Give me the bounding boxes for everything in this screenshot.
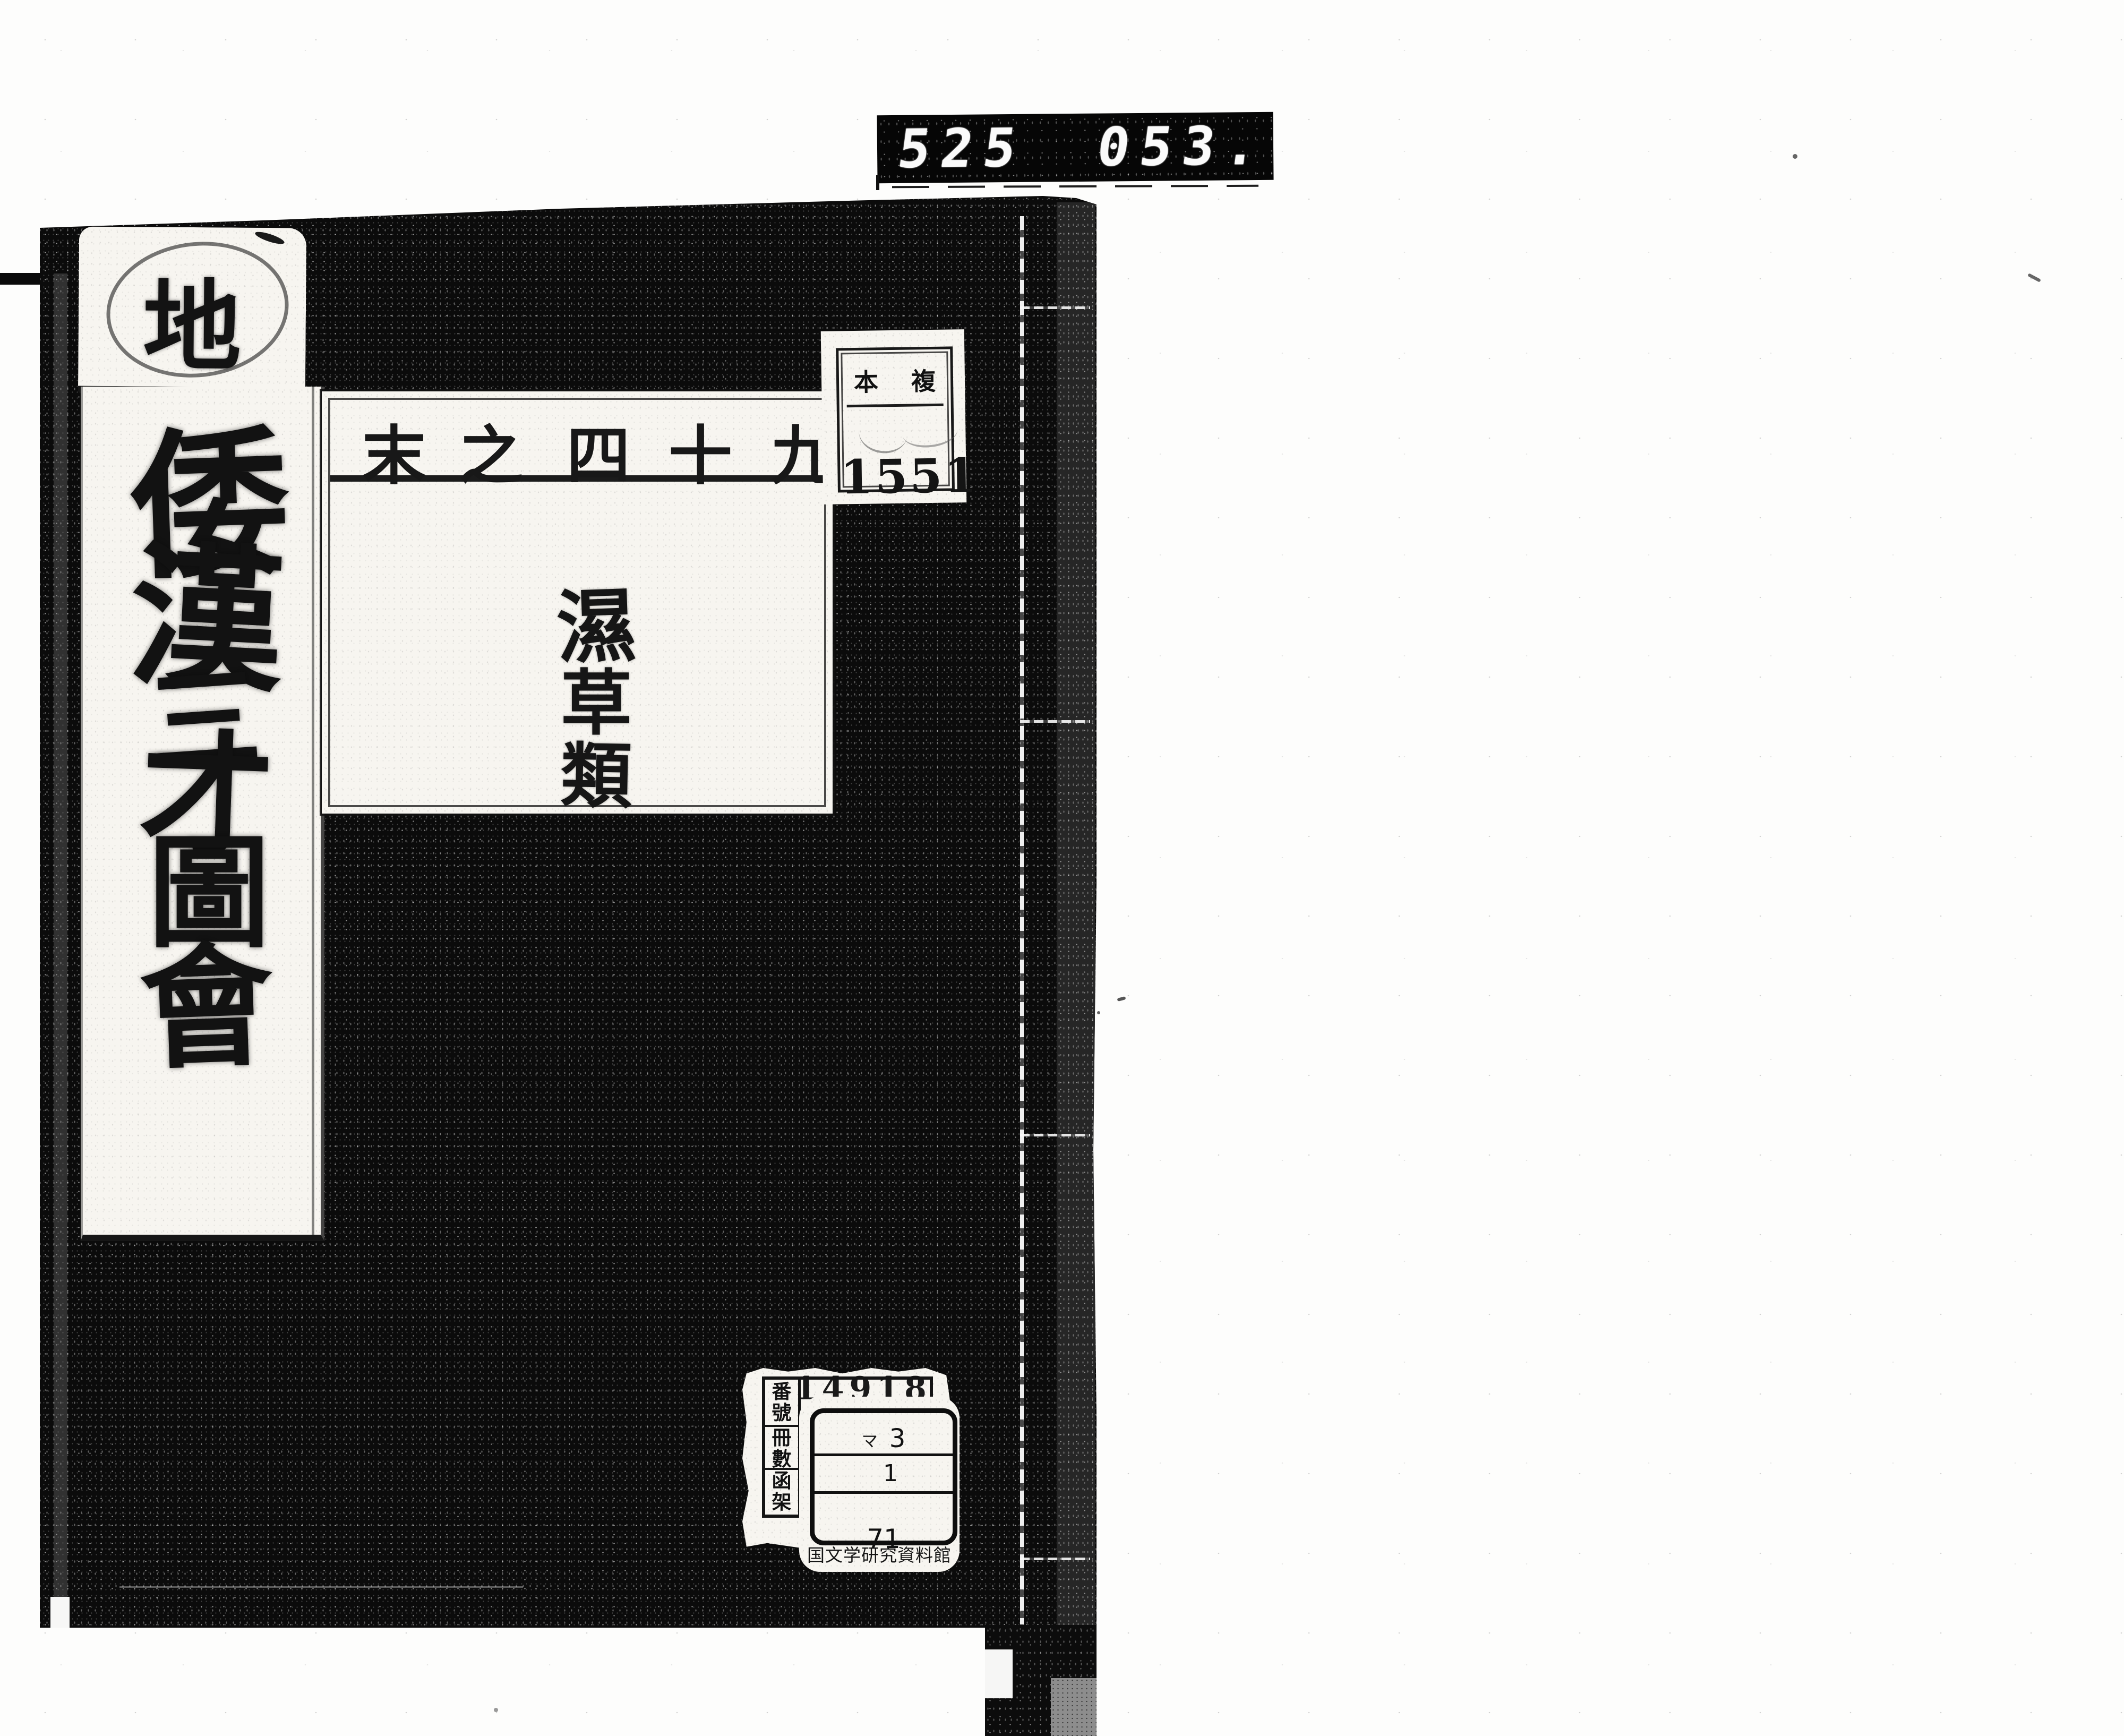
- title-character: 會: [138, 939, 276, 1076]
- shelf-label-border: 本 複 1551: [836, 346, 955, 492]
- shelf-number: 1551: [840, 448, 952, 504]
- register-header-column: 番 號 冊 數 函 架: [765, 1380, 801, 1515]
- register-header-row: 函 架: [765, 1468, 798, 1515]
- register-header-char: 架: [765, 1491, 798, 1512]
- title-slip: 末 之 四 十 九 濕 草 類: [322, 391, 833, 814]
- scan-speck: [1793, 154, 1797, 159]
- register-header-char: 函: [765, 1470, 798, 1491]
- cover-left-worn-edge: [54, 273, 67, 1612]
- volume-character: 之: [453, 404, 528, 497]
- register-header-row: 冊 數: [765, 1425, 798, 1468]
- shelf-number-label: 本 複 1551: [821, 329, 967, 504]
- spine-title-label: 倭 漢 三 才 圖 會: [81, 387, 324, 1241]
- binding-thread-stitch: [1020, 306, 1090, 309]
- volume-character: 十: [663, 404, 738, 497]
- scan-speck: [1097, 1011, 1100, 1014]
- scan-speck: [2027, 273, 2041, 283]
- shelf-label-right-char: 複: [911, 362, 936, 398]
- brush-tick-mark: [254, 229, 285, 246]
- call-number-label: マ 3 1 71 国文学研究資料館: [799, 1397, 960, 1572]
- register-header-char: 番: [765, 1381, 798, 1402]
- spine-section-label: 地: [78, 227, 306, 395]
- counter-underline-mark: [892, 185, 1258, 188]
- cover-corner-wear: [50, 1597, 70, 1628]
- call-number-row-1: マ 3: [815, 1413, 953, 1456]
- scan-speck: [1117, 996, 1126, 1002]
- register-header-char: 數: [765, 1448, 798, 1469]
- scan-artifact-line: [119, 1586, 523, 1588]
- label-border-line: [312, 387, 314, 1235]
- call-number-row-2: 1: [815, 1455, 953, 1494]
- protruding-pages-block: [985, 1625, 1097, 1736]
- volume-band: 末 之 四 十 九: [330, 400, 824, 482]
- binding-thread-stitch: [1020, 720, 1090, 723]
- frame-counter-frame-digits: 053.: [1093, 112, 1273, 182]
- page-block-edge: [1057, 202, 1095, 1626]
- volume-character: 末: [357, 404, 431, 497]
- call-number-grid: マ 3 1 71: [810, 1408, 957, 1545]
- section-character: 地: [78, 247, 306, 391]
- frame-counter: 525 053.: [877, 112, 1273, 184]
- title-slip-border: 末 之 四 十 九 濕 草 類: [328, 398, 826, 807]
- pages-gray-shadow: [1051, 1678, 1097, 1736]
- binding-thread-stitch: [1020, 1558, 1090, 1560]
- call-number-kana: マ: [862, 1431, 878, 1452]
- binding-thread-stitch: [1020, 1134, 1090, 1136]
- category-character: 類: [553, 718, 639, 823]
- frame-counter-reel-digits: 525: [894, 114, 1031, 183]
- register-header-char: 冊: [765, 1427, 798, 1448]
- binding-thread-vertical: [1020, 216, 1024, 1624]
- volume-character: 四: [561, 404, 636, 497]
- counter-corner-mark: [876, 175, 879, 190]
- shelf-label-left-char: 本: [854, 363, 879, 398]
- scan-speck: [494, 1708, 498, 1712]
- shelf-label-header: 本 複: [839, 362, 951, 399]
- register-header-row: 番 號: [765, 1380, 798, 1425]
- scanned-page: 525 053. 地 倭 漢 三 才 圖 會 末 之: [0, 0, 2124, 1736]
- register-header-char: 號: [765, 1402, 798, 1423]
- pages-white-gap: [985, 1649, 1013, 1698]
- call-number-digit: 3: [889, 1425, 906, 1452]
- institution-name: 国文学研究資料館: [799, 1541, 960, 1567]
